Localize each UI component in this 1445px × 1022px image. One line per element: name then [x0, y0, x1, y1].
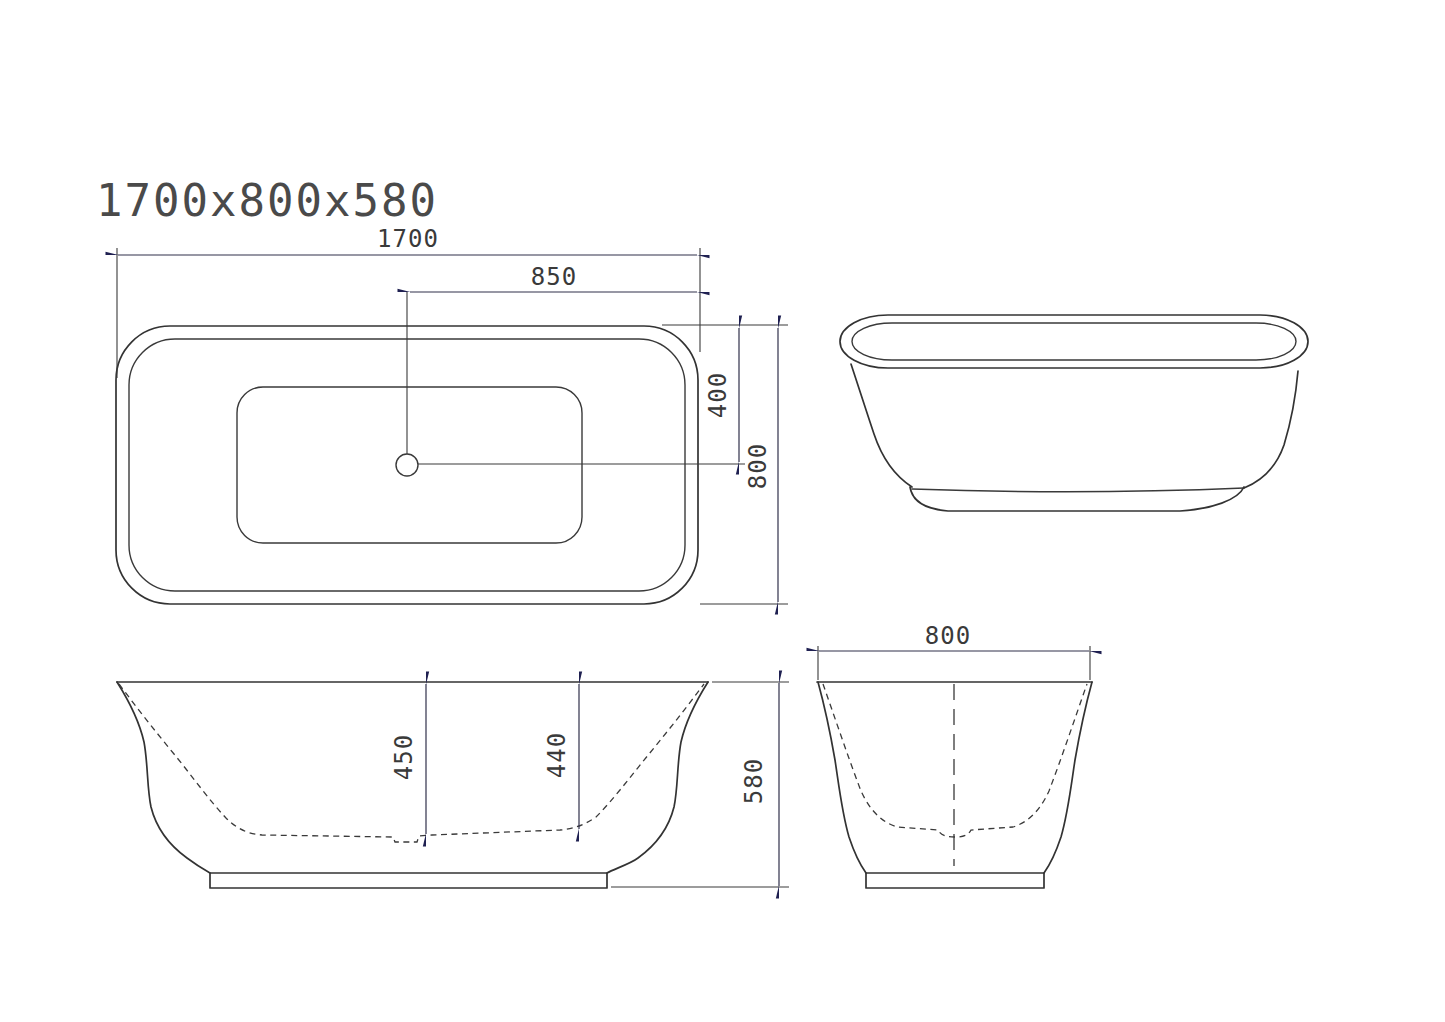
- dim-label-800: 800: [744, 443, 772, 489]
- wall-left-contour: [818, 682, 866, 873]
- dim-cross-width: 800: [818, 622, 1090, 680]
- long-section-view: 450 440 580: [117, 682, 789, 888]
- dim-inner-depth: 440: [543, 684, 579, 829]
- drawing-title: 1700x800x580: [96, 175, 438, 226]
- dim-depth-at-drain: 450: [390, 684, 426, 834]
- dim-label-1700: 1700: [377, 225, 439, 253]
- technical-drawing: 1700x800x580 1700 850: [0, 0, 1445, 1022]
- drain-icon: [396, 454, 418, 476]
- dim-drain-to-end: 850: [410, 263, 697, 292]
- cross-section-view: 800: [817, 622, 1092, 888]
- dim-overall-height: 580: [611, 682, 789, 887]
- dim-label-850: 850: [531, 263, 577, 291]
- wall-right-contour: [607, 682, 708, 873]
- side-elevation-view: [840, 315, 1308, 511]
- dim-label-440: 440: [543, 732, 571, 778]
- plinth-base: [210, 873, 607, 888]
- plinth-base: [866, 873, 1044, 888]
- wall-left-contour: [117, 682, 210, 873]
- tub-floor-edge: [237, 387, 582, 543]
- dim-label-800-cross: 800: [925, 622, 971, 650]
- rim-inner-edge: [852, 323, 1296, 360]
- drawing-canvas: 1700x800x580 1700 850: [0, 0, 1445, 1022]
- dim-label-450: 450: [390, 734, 418, 780]
- base-top-edge: [912, 488, 1244, 492]
- wall-right-contour: [1044, 682, 1092, 873]
- body-left-contour: [851, 364, 912, 487]
- dim-label-580: 580: [740, 758, 768, 804]
- dim-overall-width: 800: [700, 328, 788, 604]
- body-right-contour: [1244, 371, 1298, 488]
- dim-label-400: 400: [704, 372, 732, 418]
- dim-overall-length: 1700: [117, 225, 700, 378]
- top-view: 1700 850 400 800: [116, 225, 788, 604]
- dim-drain-offset: 400: [662, 325, 788, 462]
- inner-surface-hidden-line: [823, 684, 1087, 837]
